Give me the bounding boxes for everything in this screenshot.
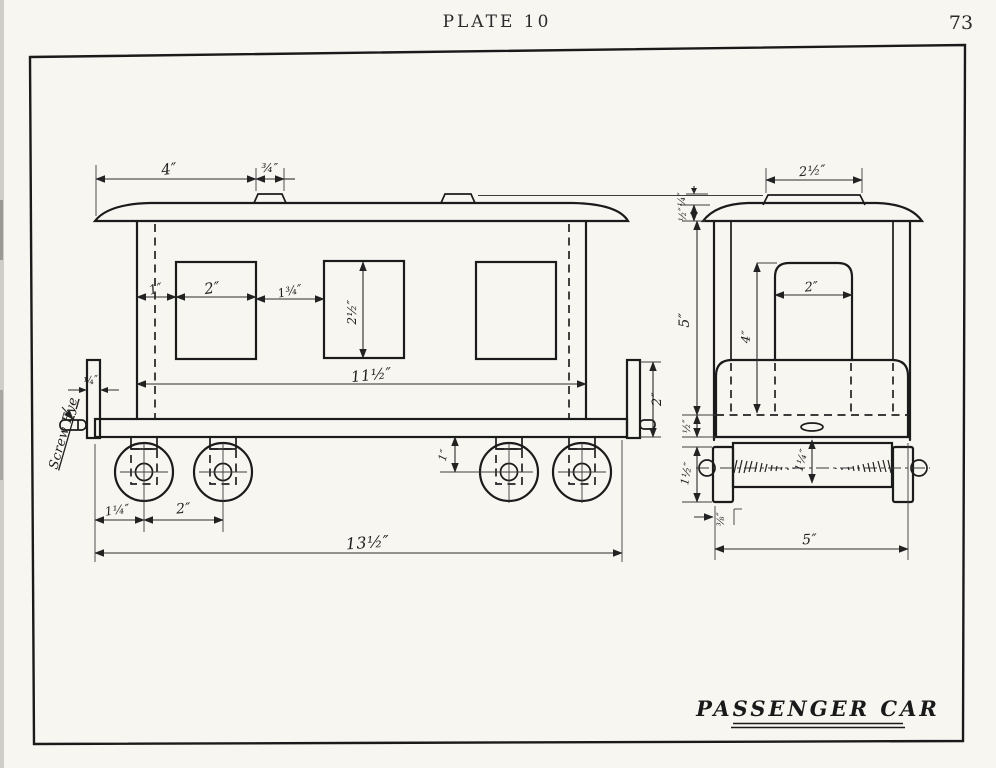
plate-border [30, 45, 965, 744]
dim-label-roof-thickness: ½″ [678, 207, 689, 221]
plate-label: PLATE 10 [443, 12, 552, 32]
screw-eye-callout: Screw Eye [46, 395, 81, 471]
screw-eye-label: Screw Eye [46, 395, 81, 471]
side-roof-vent-1 [254, 194, 286, 203]
dim-label-overall-length: 13½″ [345, 532, 390, 554]
dim-label-clerestory-width: 2½″ [797, 163, 826, 180]
scan-edge-shadow [0, 0, 4, 768]
dim-label-platform-post-height: 2″ [650, 392, 665, 407]
dim-body-length: 11½″ [137, 364, 586, 386]
dim-label-post-to-window: 1″ [147, 281, 164, 299]
dim-label-roof-overhang: 4″ [159, 159, 178, 179]
scanned-plate-page: PLATE 10 73 [0, 0, 996, 768]
dim-end-window-width: 2″ [775, 279, 852, 295]
dim-label-axle-assembly-height: 1¼″ [792, 447, 811, 473]
dim-label-overall-width: 5″ [802, 532, 818, 549]
dim-wheel-diameter: 1½″ [678, 447, 712, 502]
dim-wheel-thickness: ⅜″ [694, 509, 742, 526]
dim-label-wheel-thickness: ⅜″ [716, 512, 727, 526]
end-roof [703, 203, 922, 221]
axle-thread-right [836, 460, 891, 473]
side-roof-vent-2 [441, 194, 475, 203]
title-block: PASSENGER CAR [695, 696, 940, 728]
dim-bottom-row: 1¼″ 2″ 13½″ [95, 440, 622, 562]
dim-end-window-height: 4″ [738, 263, 777, 413]
dim-label-end-to-first-axle: 1¼″ [104, 501, 131, 518]
side-window-2 [324, 261, 404, 358]
side-window-3 [476, 262, 556, 359]
dim-clerestory-width: 2½″ [766, 163, 862, 193]
dim-label-body-height: 5″ [677, 312, 693, 327]
wheel-4 [553, 437, 611, 503]
end-wheel-left [713, 447, 733, 502]
dim-post-thickness: ¼″ [68, 373, 119, 393]
side-window-1 [176, 262, 256, 359]
dim-label-window-gap: 1¾″ [276, 282, 304, 301]
dim-body-height: 5″ [677, 221, 716, 415]
end-wheel-right [893, 447, 913, 502]
dim-label-vent-width: ¾″ [261, 161, 278, 175]
dim-label-post-thickness: ¼″ [82, 373, 100, 389]
dim-label-wheel-diameter: 1½″ [678, 460, 695, 486]
side-post-right [627, 360, 640, 438]
scan-edge-mark [0, 390, 3, 480]
drawing-title: PASSENGER CAR [695, 696, 940, 721]
dim-axle-assembly-height: 1¼″ [792, 440, 812, 483]
end-view: 2½″ ¼″ ½″ 5″ 4″ 2″ [478, 163, 930, 560]
side-frame-sill [95, 419, 627, 437]
dim-label-axle-spacing: 2″ [174, 500, 192, 517]
side-view: 4″ ¾″ 1″ 2″ 1¾″ 2½″ 11½″ ¼″ [46, 159, 665, 562]
end-window [775, 263, 852, 360]
dim-axle-drop: 1″ [436, 437, 455, 472]
axle-thread-left [734, 460, 794, 473]
side-roof [95, 203, 628, 221]
side-post-left [87, 360, 100, 438]
end-screw-eye [801, 423, 823, 431]
dim-label-window-height: 2½″ [345, 299, 359, 325]
page-number: 73 [949, 12, 973, 34]
wheel-2 [194, 437, 252, 532]
dim-label-axle-drop: 1″ [436, 447, 452, 462]
scan-edge-mark [0, 200, 3, 260]
dim-roof-overhang: 4″ ¾″ [96, 159, 295, 216]
dim-label-body-length: 11½″ [350, 364, 393, 386]
dim-label-end-window-width: 2″ [803, 279, 819, 295]
dim-window-row: 1″ 2″ 1¾″ 2½″ [137, 262, 363, 358]
dim-floor-thickness: ½″ [682, 415, 716, 437]
dim-label-clerestory-height: ¼″ [677, 192, 688, 206]
drawing-canvas: PLATE 10 73 [0, 0, 996, 768]
dim-roof-stack: ¼″ ½″ [677, 186, 710, 221]
wheel-1 [115, 437, 173, 532]
dim-label-window-width: 2″ [202, 278, 221, 298]
dim-label-floor-thickness: ½″ [682, 419, 693, 433]
dim-label-end-window-height: 4″ [738, 329, 753, 344]
end-panel [716, 360, 908, 437]
dim-platform-post-height: 2″ [640, 362, 665, 437]
